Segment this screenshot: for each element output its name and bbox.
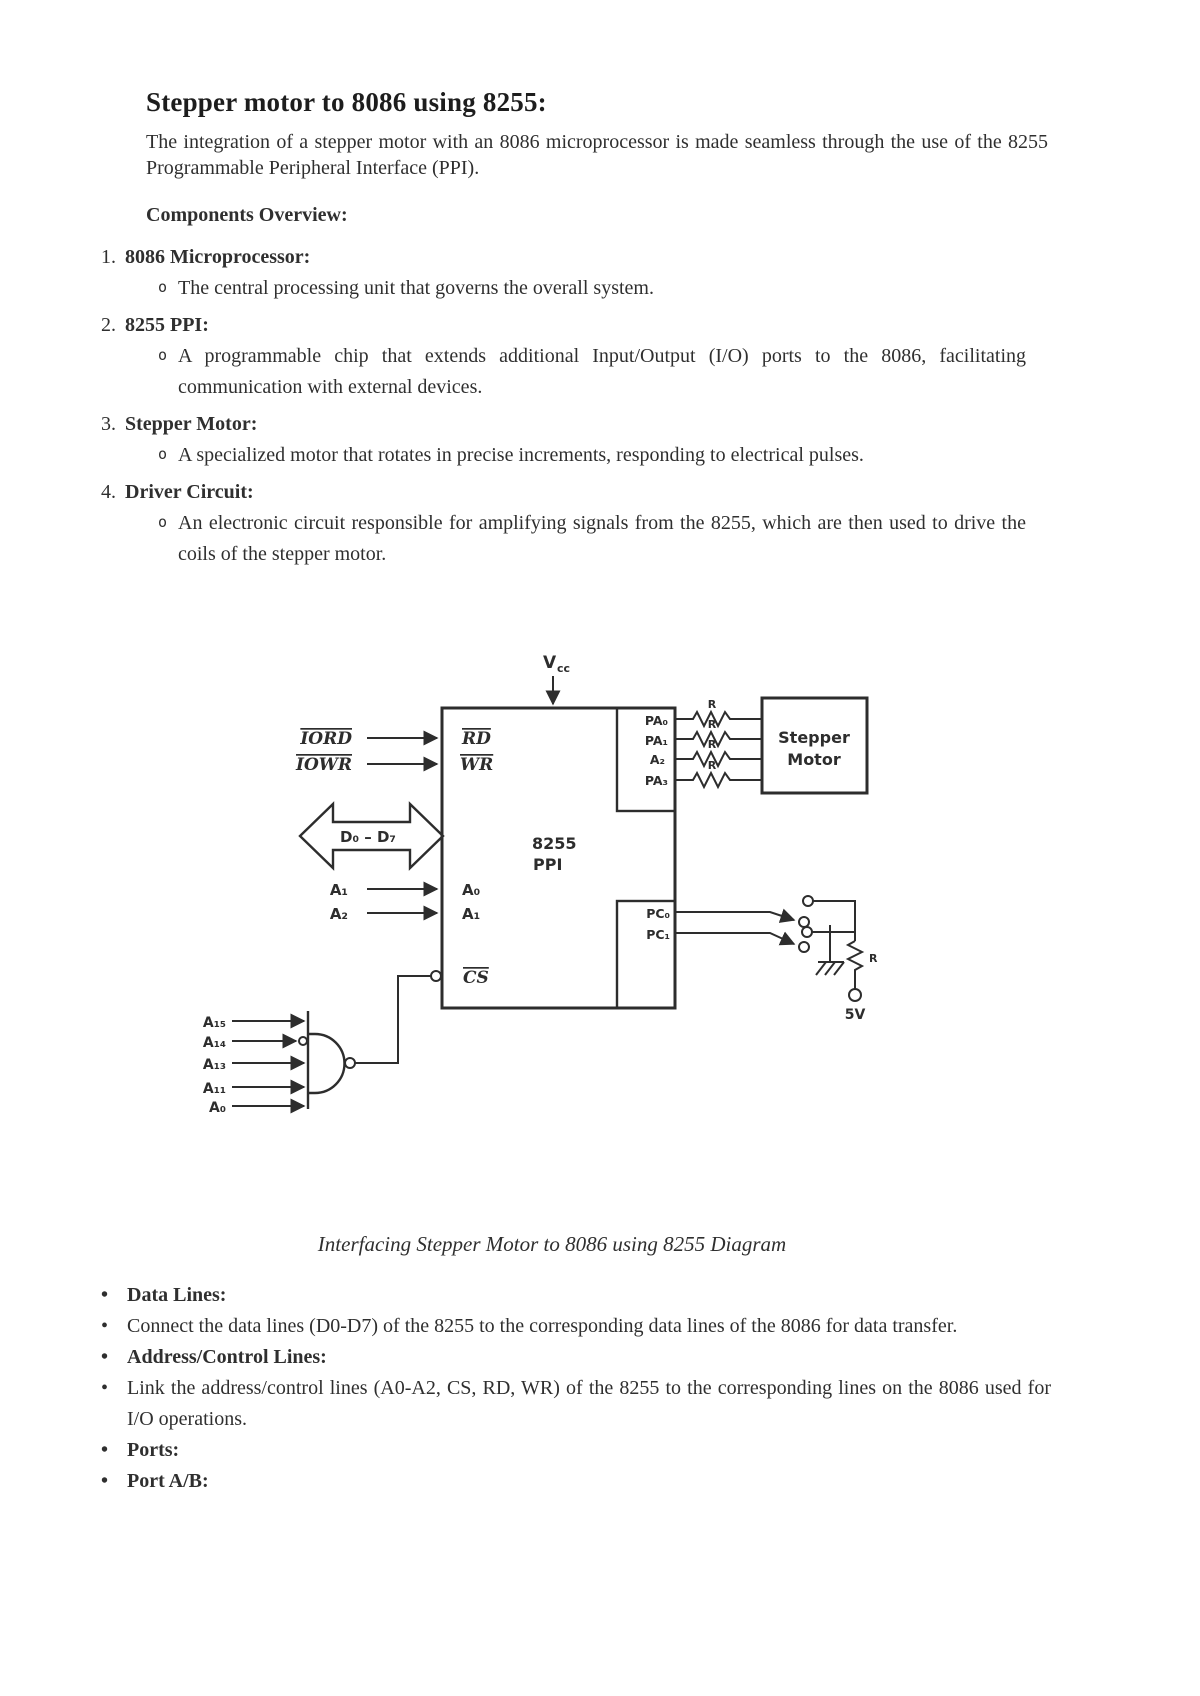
- switch-contact-2: [799, 942, 809, 952]
- list-item-number: 3.: [101, 409, 116, 440]
- stepper-motor-label-line2: Motor: [787, 750, 841, 769]
- cs-wire: [355, 976, 431, 1063]
- list-item: 3. Stepper Motor:: [101, 409, 1048, 440]
- nand-input-a14-bubble: [299, 1037, 307, 1045]
- switch-contact-mid: [802, 927, 812, 937]
- connections-bullet-list: • Data Lines: • Connect the data lines (…: [101, 1280, 1048, 1497]
- page-title: Stepper motor to 8086 using 8255:: [146, 86, 1048, 118]
- pullup-resistor-label: R: [869, 952, 878, 965]
- section-heading: Components Overview:: [146, 204, 1048, 227]
- components-list: 1. 8086 Microprocessor: o The central pr…: [101, 242, 1048, 570]
- sub-bullet: o An electronic circuit responsible for …: [101, 508, 1026, 570]
- nand-input-a13-label: A₁₃: [203, 1057, 226, 1073]
- circuit-diagram-figure: 8255 PPI V cc IORD RD IOWR WR D₀ – D₇ A₁…: [0, 570, 1200, 1230]
- list-item: 4. Driver Circuit:: [101, 477, 1048, 508]
- vcc-label-subscript: cc: [557, 662, 570, 675]
- nand-body: [308, 1034, 344, 1093]
- bullet-marker: •: [101, 1280, 108, 1311]
- list-item-number: 1.: [101, 242, 116, 273]
- port-c-pin-pc1: PC₁: [646, 927, 670, 942]
- bullet-marker: •: [101, 1435, 108, 1466]
- switch-contact-top: [803, 896, 813, 906]
- list-item-title: 8086 Microprocessor:: [125, 246, 310, 268]
- bullet-text: Connect the data lines (D0-D7) of the 82…: [127, 1315, 957, 1337]
- intro-paragraph: The integration of a stepper motor with …: [146, 129, 1048, 181]
- iowr-label: IOWR: [295, 755, 352, 775]
- sub-bullet-text: The central processing unit that governs…: [178, 277, 654, 299]
- ground-symbol: [816, 962, 844, 975]
- chip-label-line2: PPI: [533, 855, 562, 874]
- supply-5v-label: 5V: [845, 1007, 866, 1023]
- sub-bullet: o The central processing unit that gover…: [101, 273, 1026, 304]
- sub-bullet: o A programmable chip that extends addit…: [101, 341, 1026, 403]
- stepper-motor-label-line1: Stepper: [778, 728, 850, 747]
- wr-pin-label: WR: [460, 755, 493, 775]
- resistor-label-1: R: [708, 698, 717, 711]
- chip-label-line1: 8255: [532, 834, 577, 853]
- sub-bullet-marker: o: [158, 507, 167, 538]
- list-item-title: Stepper Motor:: [125, 413, 257, 435]
- list-item-number: 4.: [101, 477, 116, 508]
- bullet-item: • Ports:: [101, 1435, 1051, 1466]
- sub-bullet-text: A programmable chip that extends additio…: [178, 345, 1026, 398]
- sub-bullet: o A specialized motor that rotates in pr…: [101, 440, 1026, 471]
- switch-contact-1: [799, 917, 809, 927]
- data-bus-label: D₀ – D₇: [340, 828, 396, 846]
- rd-pin-label: RD: [461, 729, 491, 749]
- list-item-title: Driver Circuit:: [125, 481, 254, 503]
- nand-output-bubble: [345, 1058, 355, 1068]
- addr-a1-label: A₁: [330, 881, 348, 899]
- list-item: 1. 8086 Microprocessor:: [101, 242, 1048, 273]
- document-page: Stepper motor to 8086 using 8255: The in…: [0, 0, 1200, 1696]
- port-c-pin-pc0: PC₀: [646, 906, 670, 921]
- bullet-text: Port A/B:: [127, 1470, 209, 1492]
- switch-network: R 5V: [675, 896, 878, 1023]
- resistor-label-3: R: [708, 738, 717, 751]
- pin-a0-label: A₀: [462, 881, 480, 899]
- nand-input-a14-label: A₁₄: [203, 1035, 226, 1051]
- bullet-marker: •: [101, 1466, 108, 1497]
- resistor-wire-pa1: [675, 732, 762, 746]
- sub-bullet-text: An electronic circuit responsible for am…: [178, 512, 1026, 565]
- nand-input-a0-label: A₀: [209, 1100, 226, 1116]
- pc1-wire: [675, 933, 794, 944]
- list-item: 2. 8255 PPI:: [101, 310, 1048, 341]
- switch-to-rail-wire: [813, 901, 855, 941]
- list-item-title: 8255 PPI:: [125, 314, 209, 336]
- bullet-item: • Data Lines:: [101, 1280, 1051, 1311]
- bullet-item: • Port A/B:: [101, 1466, 1051, 1497]
- bullet-marker: •: [101, 1342, 108, 1373]
- vcc-label: V: [543, 653, 557, 673]
- bullet-item: • Address/Control Lines:: [101, 1342, 1051, 1373]
- resistor-wire-a2: [675, 752, 762, 766]
- resistor-label-2: R: [708, 718, 717, 731]
- port-a-pin-pa0: PA₀: [645, 713, 668, 728]
- bullet-marker: •: [101, 1373, 108, 1404]
- bullet-text: Link the address/control lines (A0-A2, C…: [127, 1377, 1051, 1430]
- sub-bullet-marker: o: [158, 340, 167, 371]
- nand-input-a15-label: A₁₅: [203, 1015, 226, 1031]
- addr-a2-label: A₂: [330, 905, 348, 923]
- port-a-pin-pa3: PA₃: [645, 773, 668, 788]
- bullet-marker: •: [101, 1311, 108, 1342]
- bullet-text: Data Lines:: [127, 1284, 226, 1306]
- circuit-diagram: 8255 PPI V cc IORD RD IOWR WR D₀ – D₇ A₁…: [170, 591, 910, 1136]
- bullet-text: Address/Control Lines:: [127, 1346, 327, 1368]
- pullup-resistor: [848, 941, 862, 989]
- resistor-label-4: R: [708, 759, 717, 772]
- supply-terminal: [849, 989, 861, 1001]
- port-a-resistor-network: R R R R: [675, 698, 762, 787]
- sub-bullet-marker: o: [158, 272, 167, 303]
- resistor-wire-pa0: [675, 712, 762, 726]
- list-item-number: 2.: [101, 310, 116, 341]
- cs-pin-label: CS: [463, 968, 489, 988]
- port-a-pin-pa1: PA₁: [645, 733, 668, 748]
- pc0-wire: [675, 912, 794, 920]
- bullet-item: • Link the address/control lines (A0-A2,…: [101, 1373, 1051, 1435]
- iord-label: IORD: [299, 729, 352, 749]
- figure-caption: Interfacing Stepper Motor to 8086 using …: [146, 1230, 1048, 1258]
- sub-bullet-text: A specialized motor that rotates in prec…: [178, 444, 864, 466]
- sub-bullet-marker: o: [158, 439, 167, 470]
- resistor-wire-pa3: [675, 773, 762, 787]
- port-a-pin-a2: A₂: [650, 752, 665, 767]
- pin-a1-label: A₁: [462, 905, 480, 923]
- bullet-item: • Connect the data lines (D0-D7) of the …: [101, 1311, 1051, 1342]
- cs-inverter-bubble: [431, 971, 441, 981]
- nand-gate: [308, 1011, 355, 1109]
- nand-input-a11-label: A₁₁: [203, 1081, 226, 1097]
- bullet-text: Ports:: [127, 1439, 179, 1461]
